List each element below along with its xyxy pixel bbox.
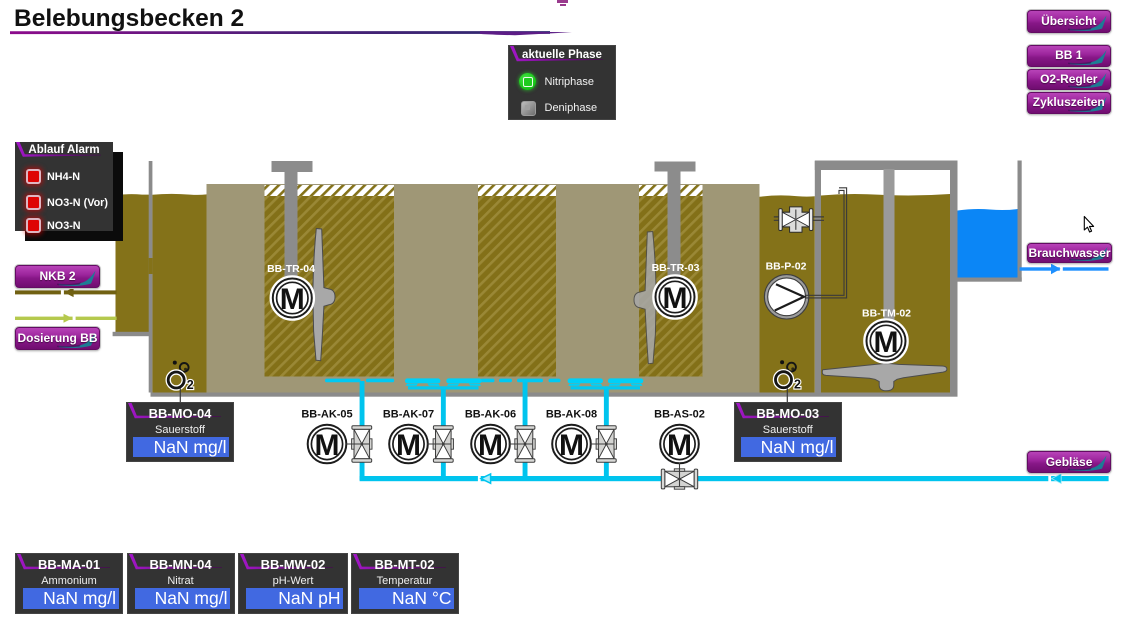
svg-text:BB-AK-08: BB-AK-08 — [546, 409, 597, 421]
svg-text:BB-AK-06: BB-AK-06 — [465, 409, 516, 421]
svg-text:BB-TM-02: BB-TM-02 — [862, 308, 911, 320]
svg-text:BB-TR-04: BB-TR-04 — [267, 263, 315, 275]
svg-text:M: M — [667, 429, 692, 462]
svg-text:BB-TR-03: BB-TR-03 — [652, 262, 700, 274]
svg-text:BB-AK-07: BB-AK-07 — [383, 409, 434, 421]
svg-text:BB-AS-02: BB-AS-02 — [654, 409, 705, 421]
svg-text:BB-AK-05: BB-AK-05 — [301, 409, 352, 421]
svg-text:BB-P-02: BB-P-02 — [766, 261, 807, 273]
